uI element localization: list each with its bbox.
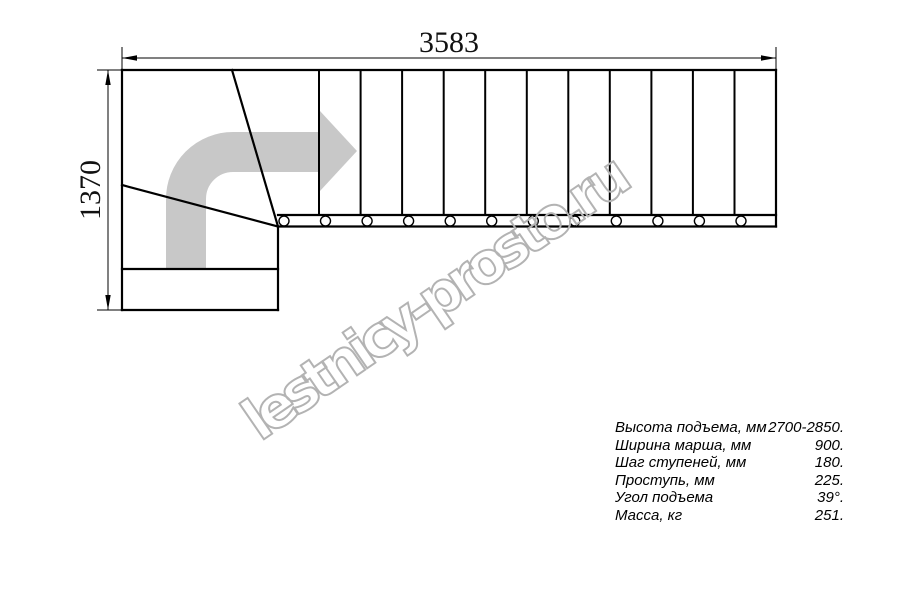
direction-arrow-head xyxy=(320,111,357,191)
spec-label: Высота подъема, мм xyxy=(615,419,767,437)
spec-row-climb-angle: Угол подъема 39°. xyxy=(615,489,844,507)
top-dimension-arrow-left xyxy=(122,55,137,60)
baluster-circle xyxy=(279,216,289,226)
spec-value: 180. xyxy=(815,454,844,472)
baluster-circle xyxy=(736,216,746,226)
baluster-circle xyxy=(404,216,414,226)
spec-value: 225. xyxy=(815,472,844,490)
top-dimension: 3583 xyxy=(122,26,776,69)
spec-label: Проступь, мм xyxy=(615,472,715,490)
baluster-circle xyxy=(445,216,455,226)
staircase-drawing-page: 3583 1370 lestnicy-prosto.ru Высота подъ… xyxy=(0,0,900,600)
baluster-circle xyxy=(362,216,372,226)
top-dimension-arrow-right xyxy=(761,55,776,60)
baluster-circle xyxy=(694,216,704,226)
spec-row-lift-height: Высота подъема, мм 2700-2850. xyxy=(615,419,844,437)
direction-arrow xyxy=(186,111,357,269)
spec-value: 39°. xyxy=(817,489,844,507)
left-dimension: 1370 xyxy=(74,70,121,310)
baluster-circle xyxy=(611,216,621,226)
direction-arrow-shaft xyxy=(186,152,321,269)
left-dimension-arrow-top xyxy=(105,70,110,85)
spec-row-step-pitch: Шаг ступеней, мм 180. xyxy=(615,454,844,472)
watermark-text: lestnicy-prosto.ru xyxy=(231,141,643,453)
spec-value: 2700-2850. xyxy=(768,419,844,437)
left-dimension-label: 1370 xyxy=(74,160,107,220)
flight-step-lines xyxy=(319,70,735,215)
left-dimension-arrow-bottom xyxy=(105,295,110,310)
top-dimension-label: 3583 xyxy=(419,26,479,59)
spec-row-tread: Проступь, мм 225. xyxy=(615,472,844,490)
spec-label: Масса, кг xyxy=(615,507,682,525)
spec-row-mass: Масса, кг 251. xyxy=(615,507,844,525)
spec-value: 251. xyxy=(815,507,844,525)
spec-label: Ширина марша, мм xyxy=(615,437,751,455)
spec-value: 900. xyxy=(815,437,844,455)
spec-label: Угол подъема xyxy=(615,489,713,507)
spec-table: Высота подъема, мм 2700-2850. Ширина мар… xyxy=(615,419,844,524)
spec-row-flight-width: Ширина марша, мм 900. xyxy=(615,437,844,455)
baluster-circle xyxy=(653,216,663,226)
spec-label: Шаг ступеней, мм xyxy=(615,454,746,472)
baluster-circle xyxy=(321,216,331,226)
